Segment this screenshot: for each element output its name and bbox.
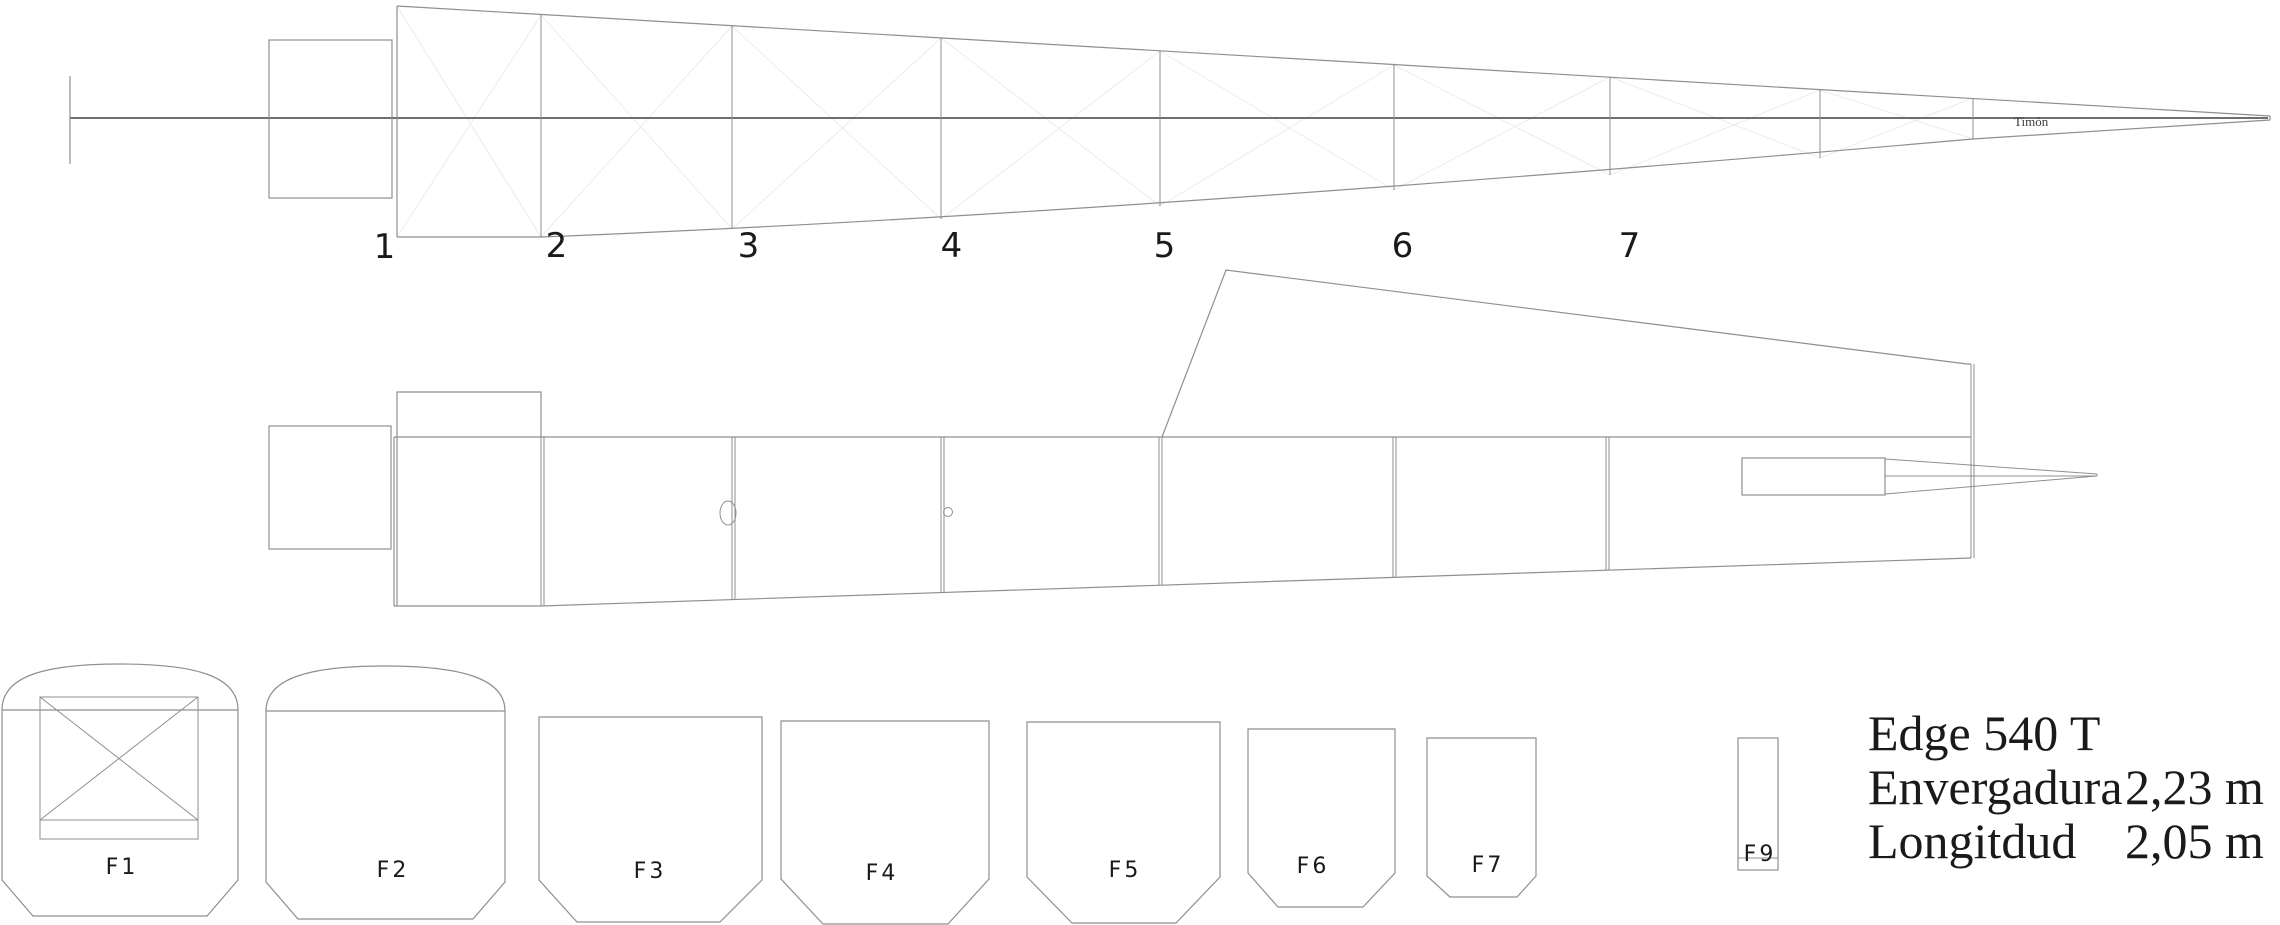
length-label: Longitdud — [1868, 813, 2076, 869]
length-value: 2,05 m — [2125, 813, 2264, 869]
stabilizer — [1742, 458, 2097, 495]
station-label-7: 7 — [1619, 226, 1642, 266]
wing-dowel-hole — [720, 501, 736, 525]
former-f4-label: F4 — [866, 861, 899, 886]
side-view-fuselage — [269, 270, 2097, 606]
plan-drawing: 1 2 3 4 5 6 7 Timón — [0, 0, 2280, 925]
elevator-outline — [1885, 459, 2097, 494]
engine-box-side-view — [269, 426, 391, 549]
stabilizer-root — [1742, 458, 1885, 495]
former-f6: F6 — [1248, 729, 1395, 907]
former-f5-label: F5 — [1109, 858, 1142, 883]
construction-diagonals — [397, 6, 1973, 237]
former-f1-bottom-strip — [40, 820, 198, 839]
former-f2: F2 — [266, 666, 505, 919]
former-f6-outline — [1248, 729, 1395, 907]
station-label-1: 1 — [374, 227, 397, 267]
former-f9: F9 — [1738, 738, 1778, 870]
former-f3-label: F3 — [634, 859, 667, 884]
fuselage-outline-top — [397, 6, 2270, 237]
rudder-label: Timón — [2014, 114, 2049, 129]
former-f1: F1 — [2, 664, 238, 916]
former-f3-outline — [539, 717, 762, 922]
station-label-3: 3 — [738, 226, 761, 266]
title-block: Edge 540 T Envergadura 2,23 m Longitdud … — [1868, 705, 2264, 869]
former-f4: F4 — [781, 721, 989, 924]
wingspan-label: Envergadura — [1868, 759, 2123, 815]
former-f7-label: F7 — [1472, 853, 1505, 878]
model-name: Edge 540 T — [1868, 705, 2100, 761]
former-f5-outline — [1027, 722, 1220, 923]
fuselage-outline-side — [394, 437, 1971, 606]
top-view-fuselage: 1 2 3 4 5 6 7 Timón — [70, 6, 2270, 267]
former-f7: F7 — [1427, 738, 1536, 897]
cowl-deck — [397, 392, 541, 437]
former-f5: F5 — [1027, 722, 1220, 923]
airplane-plan-sheet: 1 2 3 4 5 6 7 Timón — [0, 0, 2280, 925]
wingspan-value: 2,23 m — [2125, 759, 2264, 815]
former-f1-label: F1 — [106, 855, 139, 880]
station-label-2: 2 — [546, 226, 569, 266]
former-f6-label: F6 — [1297, 854, 1330, 879]
station-label-4: 4 — [941, 226, 964, 266]
former-f9-label: F9 — [1744, 842, 1777, 867]
former-f1-cross-brace — [40, 697, 198, 820]
tail-post — [1971, 364, 1974, 558]
small-hole — [944, 508, 953, 517]
former-f4-outline — [781, 721, 989, 924]
former-f2-label: F2 — [377, 858, 410, 883]
formers-row: F1 F2 F3 F4 F5 F6 F7 — [2, 664, 1778, 924]
station-lines-side — [541, 437, 1609, 606]
wing-outline — [1162, 270, 1971, 437]
station-label-6: 6 — [1392, 226, 1415, 266]
station-label-5: 5 — [1154, 226, 1177, 266]
former-f3: F3 — [539, 717, 762, 922]
